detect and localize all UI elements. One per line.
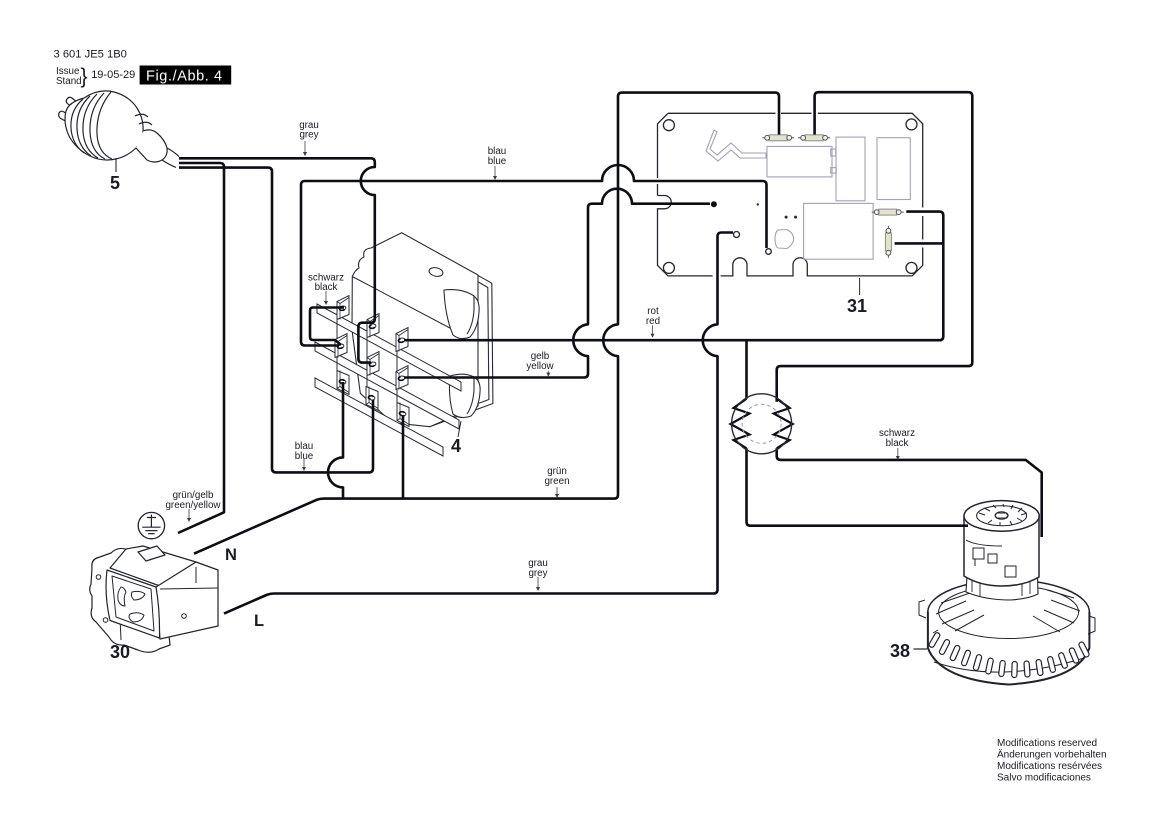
- svg-text:Salvo modificaciones: Salvo modificaciones: [997, 773, 1091, 784]
- svg-text:5: 5: [110, 173, 120, 193]
- svg-text:31: 31: [847, 296, 867, 316]
- svg-text:grey: grey: [299, 130, 318, 141]
- svg-text:grey: grey: [528, 568, 547, 579]
- svg-text:N: N: [225, 546, 237, 564]
- svg-text:red: red: [646, 316, 660, 327]
- svg-text:4: 4: [451, 436, 461, 456]
- svg-text:30: 30: [110, 642, 130, 662]
- svg-text:green: green: [544, 476, 569, 487]
- svg-text:green/yellow: green/yellow: [165, 500, 221, 511]
- svg-text:38: 38: [890, 641, 910, 661]
- svg-text:Modifications reserved: Modifications reserved: [997, 738, 1097, 749]
- svg-text:}: }: [81, 65, 88, 88]
- svg-text:19-05-29: 19-05-29: [91, 69, 135, 81]
- svg-text:Modifications resérvées: Modifications resérvées: [997, 761, 1102, 772]
- svg-text:Fig./Abb. 4: Fig./Abb. 4: [146, 69, 223, 85]
- svg-text:black: black: [315, 282, 338, 293]
- svg-text:Stand: Stand: [56, 76, 82, 87]
- svg-text:L: L: [254, 612, 264, 630]
- svg-text:blue: blue: [295, 451, 314, 462]
- svg-text:yellow: yellow: [526, 361, 554, 372]
- svg-text:Änderungen vorbehalten: Änderungen vorbehalten: [997, 749, 1107, 761]
- svg-text:black: black: [886, 438, 909, 449]
- svg-text:3 601 JE5 1B0: 3 601 JE5 1B0: [54, 49, 127, 61]
- svg-text:blue: blue: [488, 156, 507, 167]
